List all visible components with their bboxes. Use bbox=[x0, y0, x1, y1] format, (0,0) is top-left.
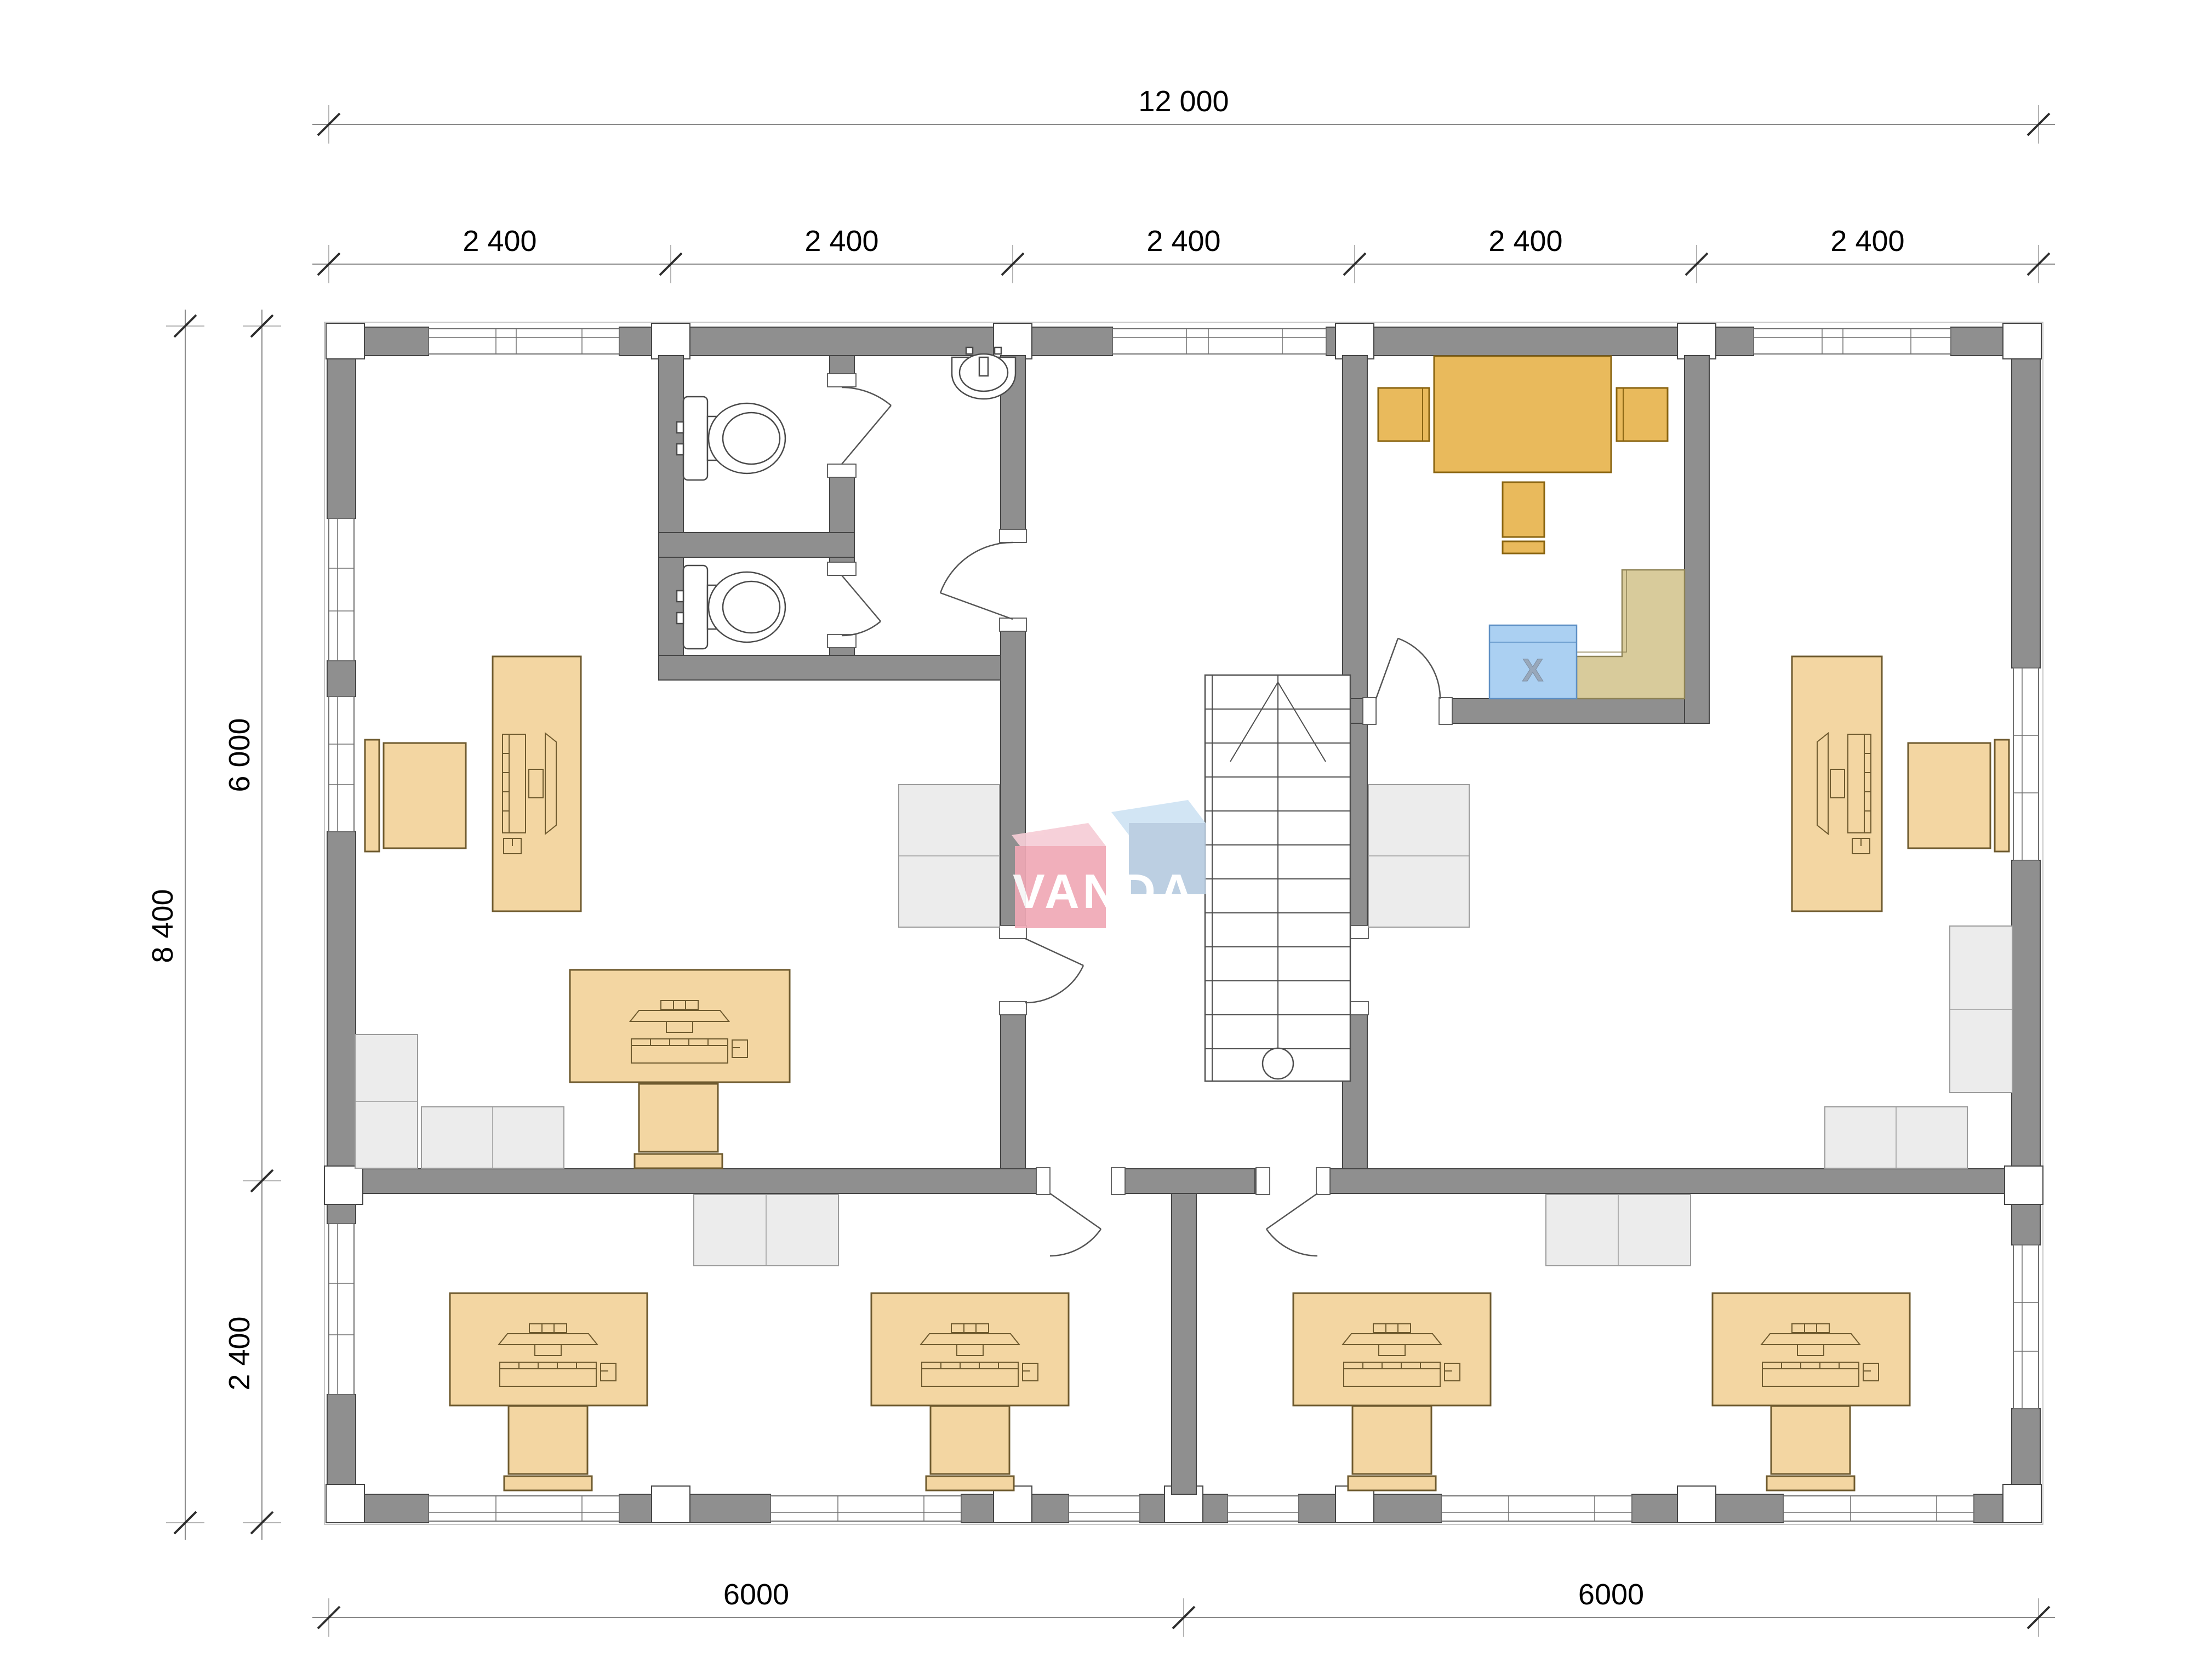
dim-left-lower: 2 400 bbox=[223, 1316, 256, 1390]
cabinet-left-wall bbox=[355, 1035, 418, 1168]
window-bottom-bay3-right bbox=[1228, 1496, 1299, 1521]
kitchen-chair-right bbox=[1617, 388, 1668, 441]
window-top-bay1 bbox=[429, 329, 619, 354]
dim-bottom-left: 6000 bbox=[723, 1578, 789, 1611]
kitchen-counter bbox=[1577, 570, 1685, 699]
window-left-1 bbox=[329, 518, 354, 661]
office-chair bbox=[926, 1406, 1014, 1490]
wall-stall-partition bbox=[659, 533, 854, 557]
stairs-pole bbox=[1263, 1048, 1293, 1079]
kitchen-appliance: X bbox=[1489, 625, 1577, 699]
dim-bay-2: 2 400 bbox=[804, 225, 878, 258]
desk bbox=[450, 1293, 647, 1405]
office-chair bbox=[504, 1406, 592, 1490]
appliance-x-mark: X bbox=[1522, 653, 1544, 688]
office-chair bbox=[1908, 740, 2009, 852]
window-top-bay3 bbox=[1112, 329, 1326, 354]
desk bbox=[1792, 656, 1882, 911]
wall-band-left bbox=[363, 1169, 1037, 1193]
workstation-left-office bbox=[365, 656, 581, 911]
vanda-logo: VANDA bbox=[1012, 800, 1206, 928]
window-bottom-bay2 bbox=[770, 1496, 961, 1521]
wall-bathroom-left bbox=[659, 356, 683, 680]
office-chair bbox=[365, 740, 466, 852]
window-bottom-bay1 bbox=[429, 1496, 619, 1521]
wall-bottom-divider bbox=[1172, 1193, 1196, 1494]
cabinet-right-wall bbox=[1950, 926, 2012, 1093]
dim-bay-5: 2 400 bbox=[1830, 225, 1904, 258]
office-chair bbox=[1767, 1406, 1854, 1490]
window-left-3 bbox=[329, 1224, 354, 1395]
kitchen-chair-left bbox=[1378, 388, 1429, 441]
dim-bay-1: 2 400 bbox=[463, 225, 536, 258]
workstation-bottom-3 bbox=[1293, 1293, 1491, 1490]
window-right-2 bbox=[2013, 1245, 2039, 1409]
cabinet-right-office-band bbox=[1825, 1107, 1967, 1168]
workstation-left-office-2 bbox=[570, 970, 790, 1168]
wall-kitchen-right bbox=[1685, 356, 1709, 723]
desk bbox=[871, 1293, 1069, 1405]
dim-bay-4: 2 400 bbox=[1488, 225, 1562, 258]
toilet-upper-symbol bbox=[677, 397, 785, 480]
dim-left-upper: 6 000 bbox=[223, 718, 256, 792]
dim-bay-3: 2 400 bbox=[1146, 225, 1220, 258]
window-left-2 bbox=[329, 696, 354, 832]
window-bottom-bay3-left bbox=[1069, 1496, 1140, 1521]
cabinet-bottom-left-room bbox=[694, 1195, 838, 1266]
floor-plan-page: 12 000 2 400 2 400 2 400 2 400 2 400 8 4… bbox=[0, 0, 2192, 1680]
desk bbox=[1293, 1293, 1491, 1405]
dim-top-total: 12 000 bbox=[1138, 85, 1229, 118]
desk bbox=[570, 970, 790, 1082]
window-right-1 bbox=[2013, 668, 2039, 860]
wall-kitchen-bottom bbox=[1440, 699, 1709, 723]
wall-bathroom-bottom bbox=[659, 655, 1025, 680]
workstation-bottom-2 bbox=[871, 1293, 1069, 1490]
office-chair bbox=[635, 1084, 722, 1168]
window-bottom-bay5 bbox=[1783, 1496, 1974, 1521]
workstation-right-office bbox=[1792, 656, 2009, 911]
kitchen-chair-bottom bbox=[1503, 482, 1544, 553]
floor-plan-canvas: 12 000 2 400 2 400 2 400 2 400 2 400 8 4… bbox=[0, 0, 2192, 1680]
desk bbox=[493, 656, 581, 911]
wall-band-center bbox=[1112, 1169, 1255, 1193]
cabinet-bottom-right-room bbox=[1546, 1195, 1691, 1266]
workstation-bottom-4 bbox=[1713, 1293, 1910, 1490]
dim-left-total: 8 400 bbox=[146, 889, 179, 963]
workstation-bottom-1 bbox=[450, 1293, 647, 1490]
wall-band-right bbox=[1330, 1169, 2005, 1193]
desk bbox=[1713, 1293, 1910, 1405]
cabinet-right-office-mid bbox=[1368, 785, 1469, 927]
cabinet-left-office-mid bbox=[899, 785, 1000, 927]
stairs bbox=[1205, 675, 1350, 1081]
kitchen-table bbox=[1434, 356, 1611, 472]
office-chair bbox=[1348, 1406, 1436, 1490]
window-bottom-bay4 bbox=[1441, 1496, 1632, 1521]
kitchen-area: X bbox=[1378, 356, 1685, 699]
window-top-bay5 bbox=[1754, 329, 1951, 354]
toilet-lower-symbol bbox=[677, 565, 785, 649]
dim-bottom-right: 6000 bbox=[1578, 1578, 1644, 1611]
cabinet-left-office-band bbox=[421, 1107, 564, 1168]
logo-text: VANDA bbox=[1013, 864, 1197, 918]
